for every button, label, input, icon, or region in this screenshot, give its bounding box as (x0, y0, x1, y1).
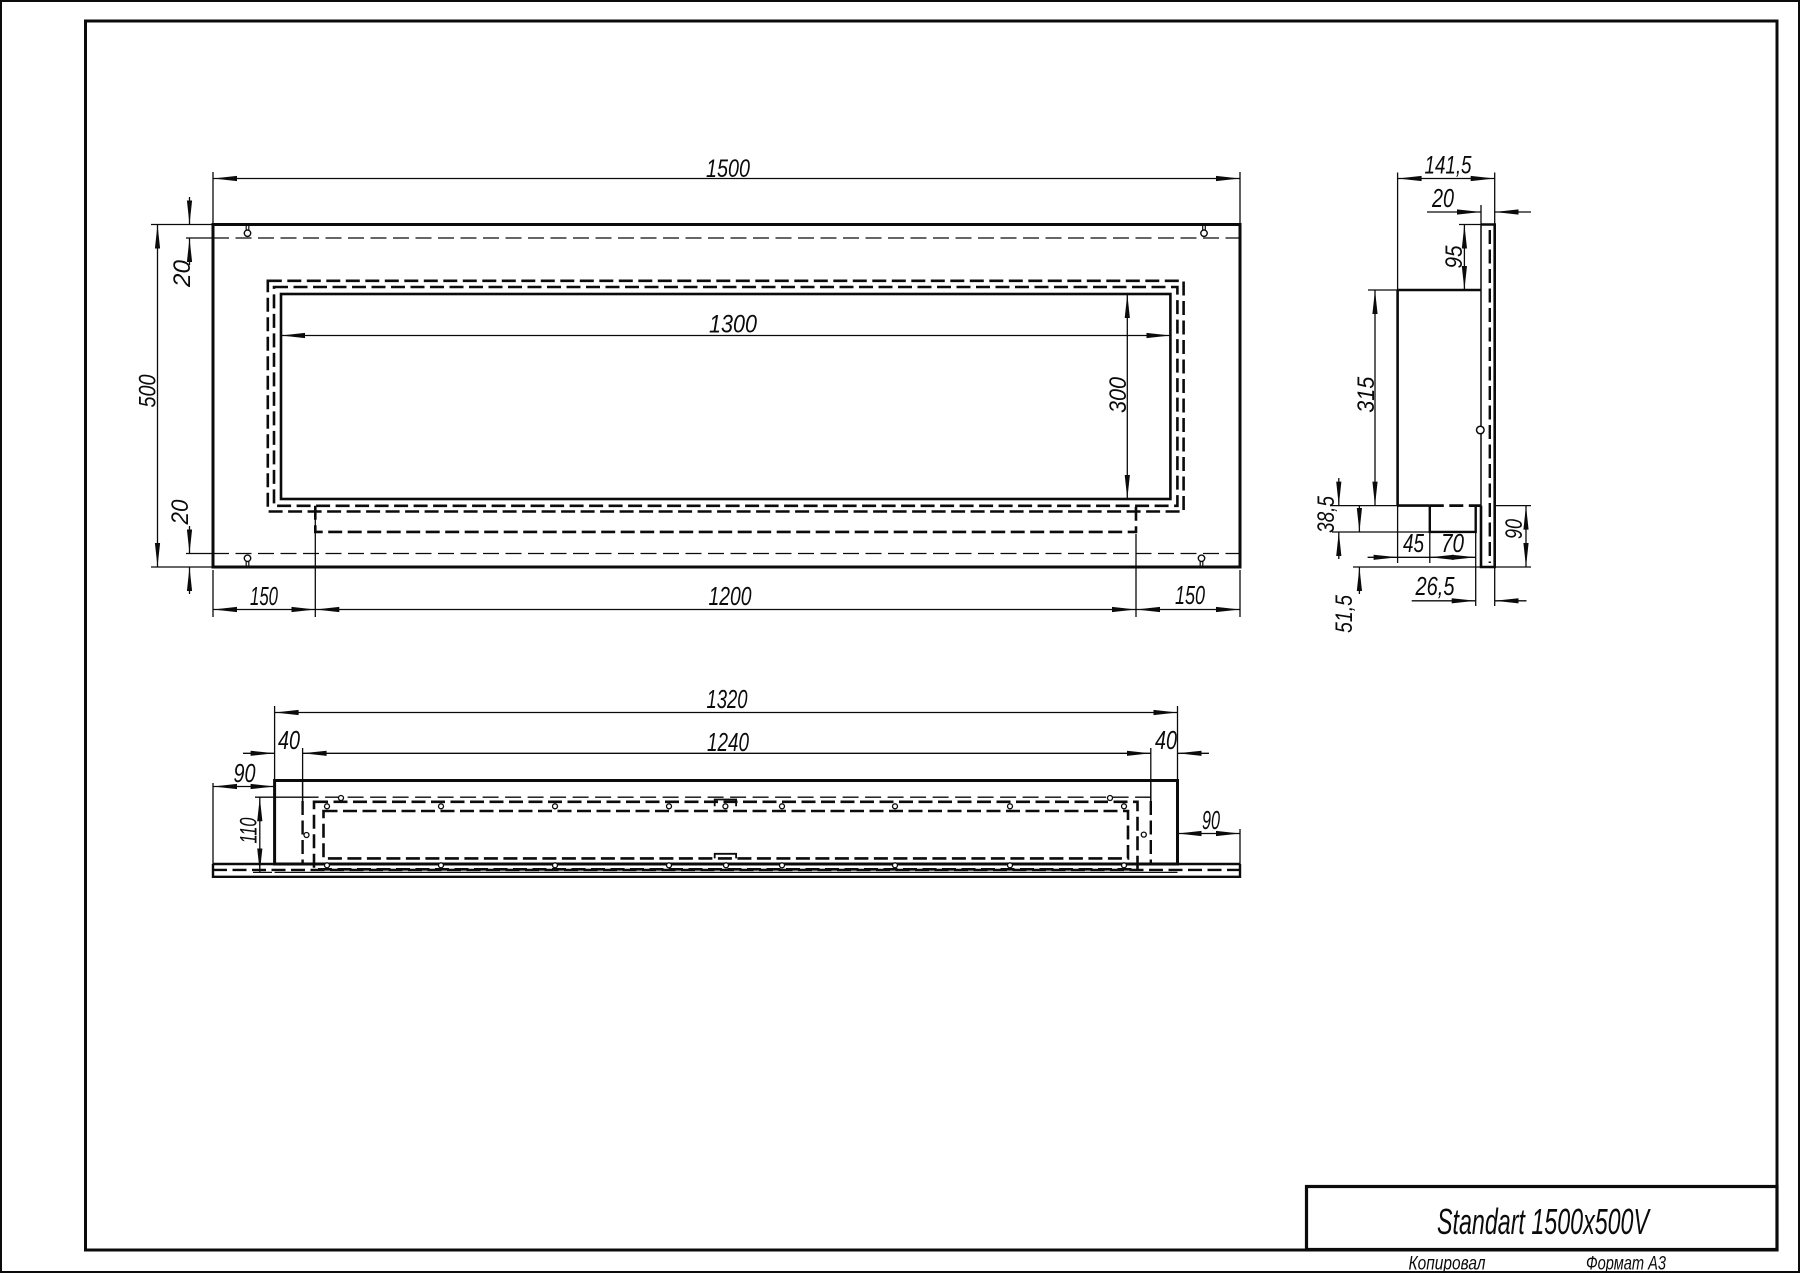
svg-text:95: 95 (1441, 245, 1468, 269)
svg-text:45: 45 (1403, 528, 1424, 558)
svg-text:1300: 1300 (709, 311, 757, 339)
svg-text:90: 90 (1202, 805, 1220, 835)
svg-text:70: 70 (1441, 528, 1464, 558)
svg-text:315: 315 (1353, 376, 1380, 413)
svg-text:90: 90 (1501, 519, 1528, 539)
svg-text:150: 150 (1175, 580, 1205, 610)
svg-text:1200: 1200 (709, 581, 752, 611)
svg-text:141,5: 141,5 (1425, 152, 1472, 180)
svg-text:38,5: 38,5 (1313, 495, 1340, 533)
svg-text:300: 300 (1105, 376, 1132, 413)
svg-text:20: 20 (169, 259, 196, 288)
svg-text:40: 40 (1155, 725, 1177, 755)
svg-text:500: 500 (135, 374, 162, 408)
svg-text:26,5: 26,5 (1415, 571, 1455, 601)
svg-text:1240: 1240 (707, 727, 749, 757)
svg-text:1500: 1500 (706, 155, 750, 183)
svg-text:90: 90 (234, 758, 256, 788)
svg-text:Копировал: Копировал (1409, 1254, 1486, 1273)
svg-text:20: 20 (167, 499, 194, 526)
svg-text:150: 150 (250, 581, 278, 611)
svg-text:20: 20 (1431, 183, 1454, 213)
svg-text:Standart 1500x500V: Standart 1500x500V (1437, 1201, 1651, 1242)
svg-text:40: 40 (278, 725, 300, 755)
svg-text:1320: 1320 (707, 684, 748, 714)
svg-text:51,5: 51,5 (1331, 594, 1358, 633)
svg-text:110: 110 (236, 817, 263, 843)
svg-text:Формат А3: Формат А3 (1586, 1254, 1666, 1273)
